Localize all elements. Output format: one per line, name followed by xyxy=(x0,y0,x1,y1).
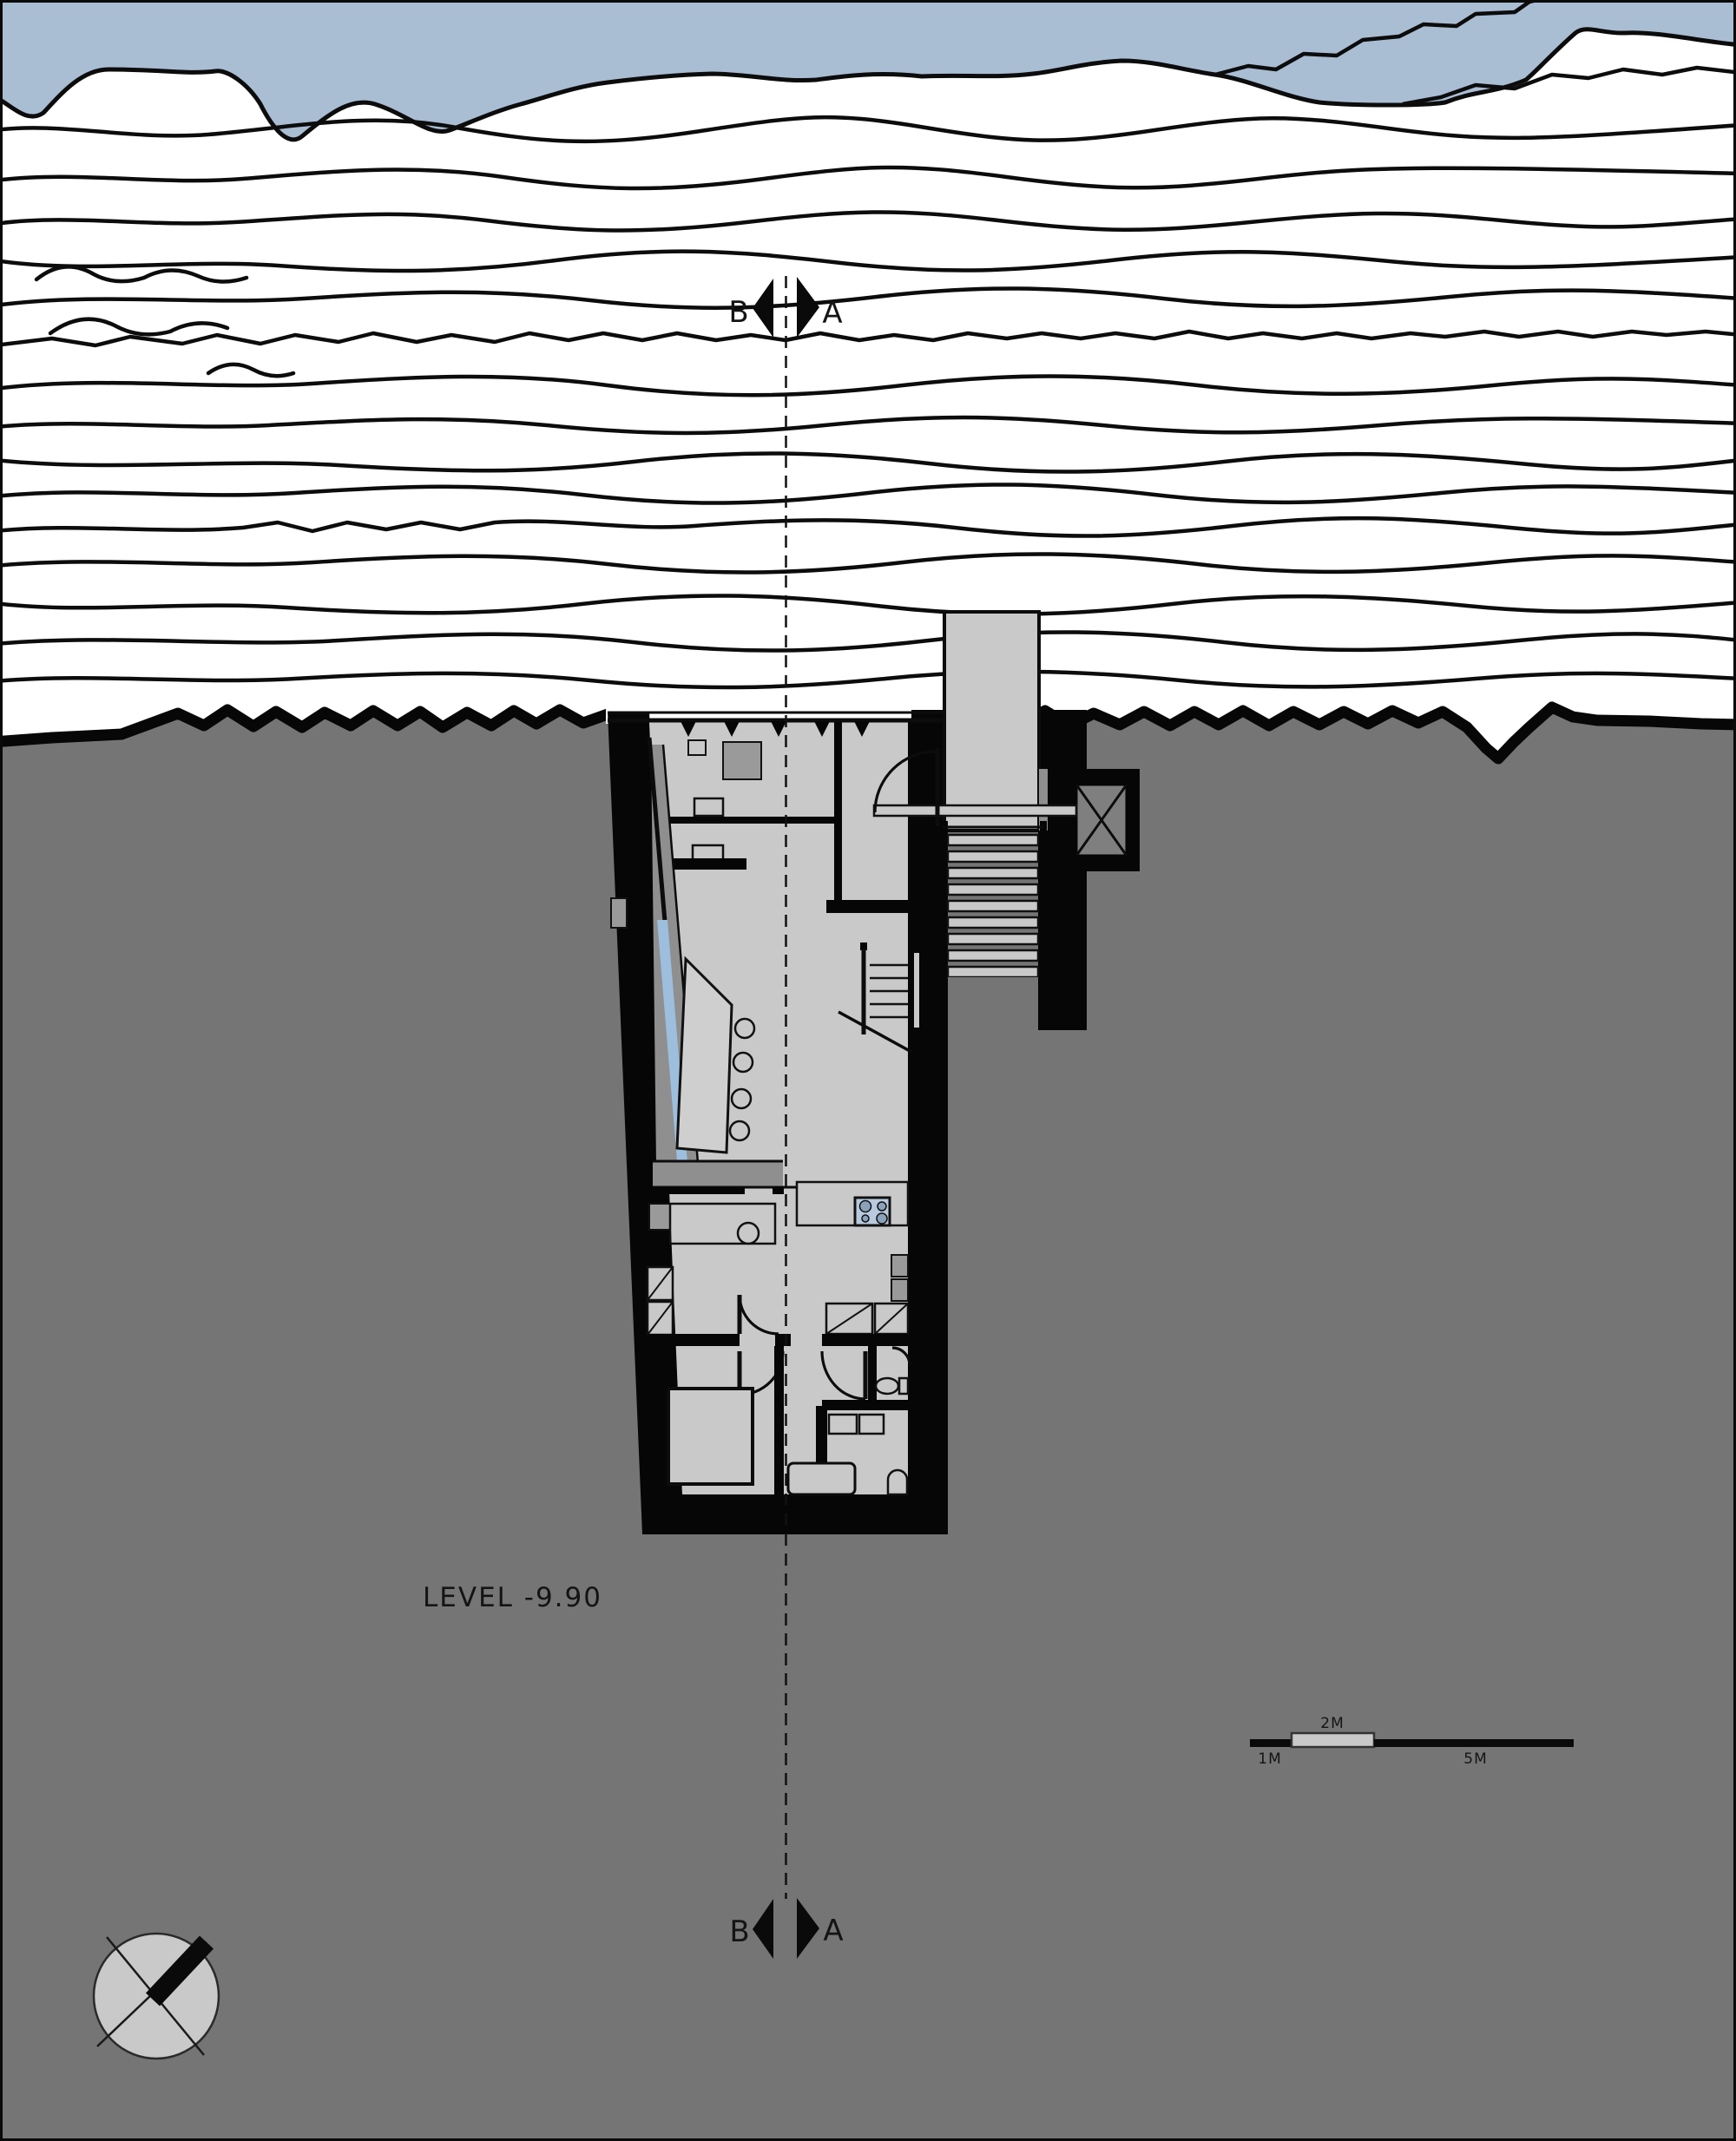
burner-3 xyxy=(862,1215,869,1222)
section-label-a-bottom: A xyxy=(823,1914,843,1948)
stair-handrail-strip xyxy=(914,953,919,1028)
laundry-north-wall xyxy=(649,1187,745,1194)
burner-4 xyxy=(877,1213,887,1224)
site-plan-sheet: B A B A LEVEL -9.90 2M 1M 5M xyxy=(0,0,1736,2141)
scale-segment-1m xyxy=(1250,1739,1292,1747)
section-label-b-bottom: B xyxy=(729,1914,749,1949)
kitchen-counter xyxy=(797,1182,908,1225)
burner-2 xyxy=(878,1202,886,1211)
section-label-b-top: B xyxy=(728,295,748,330)
cabinet-1 xyxy=(891,1255,908,1277)
mid-wall-left xyxy=(648,1334,740,1346)
bedroom-left-east-wall xyxy=(774,1346,784,1494)
entry-lower-wall xyxy=(826,900,908,913)
wash-basin xyxy=(738,1223,759,1244)
wall-niche xyxy=(611,898,627,928)
section-label-a-top: A xyxy=(822,296,842,331)
burner-1 xyxy=(860,1201,871,1212)
south-wall xyxy=(642,1494,948,1534)
stool-3 xyxy=(732,1089,751,1108)
dresser-1 xyxy=(829,1415,857,1434)
dresser-2 xyxy=(859,1415,884,1434)
scale-label-1m: 1M xyxy=(1258,1750,1281,1768)
bridge-deck xyxy=(944,612,1039,831)
scale-segment-5m xyxy=(1374,1739,1574,1747)
bed-small xyxy=(788,1463,855,1494)
north-compass xyxy=(94,1934,219,2059)
study-south-wall xyxy=(648,817,840,824)
stool-4 xyxy=(730,1121,749,1140)
laundry-north-wall-stub xyxy=(773,1187,784,1194)
mid-wall-stub xyxy=(775,1334,791,1346)
level-annotation: LEVEL -9.90 xyxy=(423,1582,602,1613)
bed-large xyxy=(668,1389,753,1484)
study-east-wall xyxy=(834,722,842,900)
entry-corner-wall xyxy=(911,710,946,755)
stool-2 xyxy=(733,1053,753,1072)
ledge-band xyxy=(653,1161,783,1187)
scale-label-5m: 5M xyxy=(1463,1750,1487,1768)
scale-label-2m: 2M xyxy=(1320,1715,1344,1732)
stair-landing xyxy=(948,977,1038,1118)
armchair xyxy=(888,1470,907,1494)
desk-table xyxy=(723,742,761,779)
scale-segment-2m xyxy=(1292,1733,1374,1747)
east-wall xyxy=(908,722,948,1494)
washer xyxy=(649,1204,670,1230)
toilet-bowl xyxy=(876,1378,898,1394)
entry-rail-bar xyxy=(874,805,1076,816)
wc-south-wall xyxy=(822,1400,908,1410)
exterior-stair-treads xyxy=(948,835,1038,977)
light-shaft xyxy=(1076,785,1127,856)
entry-bridge xyxy=(944,612,1048,831)
wc-wall xyxy=(868,1346,877,1400)
toilet-tank xyxy=(899,1378,908,1394)
kitchen-south-wall xyxy=(822,1334,908,1346)
cabinet-2 xyxy=(891,1279,908,1301)
stool-1 xyxy=(735,1019,754,1038)
shelf-1 xyxy=(694,798,723,816)
architectural-plan-drawing: B A B A LEVEL -9.90 2M 1M 5M xyxy=(0,0,1736,2141)
